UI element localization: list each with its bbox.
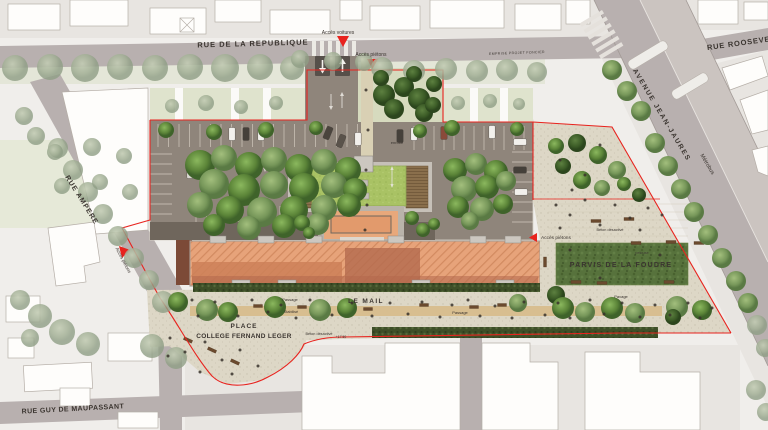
tree (258, 122, 274, 138)
label-acces-voitures: Accès voitures (322, 30, 355, 36)
label-acces-pietons-top: Accès piétons (355, 52, 387, 58)
label-level-mail: +17.50 (336, 335, 347, 339)
tree (21, 329, 39, 347)
person-dot (365, 89, 368, 92)
person-dot (197, 315, 200, 318)
tree (665, 309, 681, 325)
tree (49, 319, 75, 345)
tree (425, 97, 441, 113)
tree (311, 149, 337, 175)
tree (552, 297, 574, 319)
tree (493, 194, 513, 214)
person-dot (599, 277, 602, 280)
person-dot (603, 313, 606, 316)
person-dot (647, 207, 650, 210)
tree (451, 96, 465, 110)
person-dot (669, 314, 672, 317)
bench (420, 304, 429, 307)
hedge-north (193, 283, 540, 292)
person-dot (511, 317, 514, 320)
tree (337, 193, 361, 217)
bench (591, 220, 601, 223)
person-dot (371, 315, 374, 318)
bench (666, 241, 676, 244)
site-plan-canvas: RUE DE LA REPUBLIQUE RUE ROOSEVELT AVENU… (0, 0, 768, 430)
person-dot (639, 229, 642, 232)
label-pavage: Pavage (614, 294, 628, 299)
person-dot (295, 317, 298, 320)
tree (177, 54, 203, 80)
person-dot (659, 254, 662, 257)
tree (269, 96, 283, 110)
person-dot (367, 129, 370, 132)
person-dot (364, 229, 367, 232)
bench (597, 282, 607, 285)
tree (15, 107, 33, 125)
tree (142, 55, 168, 81)
tree (324, 52, 342, 70)
tree (746, 380, 766, 400)
tree (466, 60, 488, 82)
parked-car (489, 126, 495, 139)
person-dot (257, 365, 260, 368)
tree (218, 302, 238, 322)
label-le-mail: LE MAIL (348, 298, 384, 305)
bench (298, 306, 307, 309)
person-dot (544, 314, 547, 317)
tree (575, 302, 595, 322)
bench (664, 281, 674, 284)
tree (211, 145, 237, 171)
tree (405, 211, 419, 225)
person-dot (331, 314, 334, 317)
person-dot (599, 224, 602, 227)
tree (406, 66, 422, 82)
tree (122, 184, 138, 200)
tree (435, 58, 457, 80)
tree (272, 214, 296, 238)
parked-car (243, 128, 249, 141)
tree (428, 218, 440, 230)
wood-deck-east (406, 166, 428, 208)
person-dot (231, 373, 234, 376)
tree (573, 171, 591, 189)
pedestrian-path (361, 58, 373, 162)
tree (608, 161, 626, 179)
person-dot (366, 204, 369, 207)
parked-car (514, 167, 527, 173)
tree (658, 156, 678, 176)
tree (309, 121, 323, 135)
tree (158, 122, 174, 138)
parked-car (229, 128, 235, 141)
tree (527, 62, 547, 82)
person-dot (280, 304, 283, 307)
tree (513, 98, 525, 110)
tree (291, 50, 309, 68)
tree (187, 192, 213, 218)
person-dot (571, 189, 574, 192)
person-dot (661, 214, 664, 217)
tree (116, 148, 132, 164)
tree (416, 223, 430, 237)
label-passage-2: Passage (452, 310, 468, 315)
bench (498, 304, 507, 307)
label-enrobe: enrobé (391, 140, 404, 145)
person-dot (169, 337, 172, 340)
person-dot (584, 199, 587, 202)
tree (168, 292, 188, 312)
person-dot (407, 313, 410, 316)
tree (198, 95, 214, 111)
bench (470, 306, 479, 309)
person-dot (711, 307, 714, 310)
label-beton-mail: Béton désactivé (305, 332, 332, 336)
parked-car (514, 139, 527, 145)
label-stabilise: Stabilisé (284, 310, 298, 314)
label-beton-parvis: Béton désactivé (596, 228, 623, 232)
tree (321, 172, 347, 198)
person-dot (239, 349, 242, 352)
parked-car (515, 189, 528, 195)
person-dot (479, 315, 482, 318)
tree (303, 227, 315, 239)
tree (645, 133, 665, 153)
bench (631, 242, 641, 245)
person-dot (191, 299, 194, 302)
person-dot (237, 315, 240, 318)
tree (165, 99, 179, 113)
label-place-line1: PLACE (230, 323, 257, 330)
tree (461, 212, 479, 230)
tree (444, 120, 460, 136)
bench (364, 308, 373, 311)
bench (571, 281, 581, 284)
label-place-line2: COLLEGE FERNAND LEGER (196, 333, 292, 340)
person-dot (167, 355, 170, 358)
tree (568, 134, 586, 152)
person-dot (421, 301, 424, 304)
tree (108, 226, 128, 246)
label-passage-1: Passage (282, 297, 298, 302)
tree (2, 55, 28, 81)
tree (496, 59, 518, 81)
person-dot (451, 304, 454, 307)
person-dot (204, 341, 207, 344)
person-dot (199, 371, 202, 374)
tree (309, 299, 331, 321)
tree (140, 334, 164, 358)
tree (373, 70, 389, 86)
tree (71, 54, 99, 82)
tree (139, 270, 159, 290)
person-dot (687, 302, 690, 305)
person-dot (569, 214, 572, 217)
tree (234, 100, 248, 114)
bench (544, 257, 547, 267)
tree (625, 303, 645, 323)
person-dot (557, 302, 560, 305)
tree (747, 315, 767, 335)
tree (413, 124, 427, 138)
label-pelouse: pelouse (635, 251, 648, 255)
tree (510, 122, 524, 136)
tree (726, 271, 746, 291)
tree (165, 347, 187, 369)
person-dot (559, 159, 562, 162)
tree (107, 54, 133, 80)
tree (496, 171, 516, 191)
person-dot (365, 169, 368, 172)
tree (261, 147, 287, 173)
parked-car (355, 133, 361, 146)
person-dot (699, 317, 702, 320)
tree (384, 99, 404, 119)
tree (548, 138, 564, 154)
masterplan-svg: RUE DE LA REPUBLIQUE RUE ROOSEVELT AVENU… (0, 0, 768, 430)
tree (465, 153, 487, 175)
person-dot (214, 301, 217, 304)
tree (83, 138, 101, 156)
person-dot (555, 204, 558, 207)
person-dot (494, 305, 497, 308)
person-dot (654, 304, 657, 307)
person-dot (523, 301, 526, 304)
label-parvis-foudre: PARVIS DE LA FOUDRE (570, 262, 672, 269)
person-dot (639, 316, 642, 319)
person-dot (184, 351, 187, 354)
person-dot (467, 299, 470, 302)
tree (28, 304, 52, 328)
person-dot (389, 302, 392, 305)
person-dot (439, 316, 442, 319)
person-dot (599, 144, 602, 147)
tree (426, 76, 442, 92)
tree (237, 216, 261, 240)
tree (247, 54, 273, 80)
tree (206, 124, 222, 140)
person-dot (559, 227, 562, 230)
person-dot (267, 311, 270, 314)
tree (684, 202, 704, 222)
tree (10, 290, 30, 310)
tree (260, 171, 288, 199)
tree (602, 60, 622, 80)
tree (594, 180, 610, 196)
courtyard-canopy (331, 216, 391, 233)
tree (92, 174, 108, 190)
tree (617, 177, 631, 191)
tree (698, 225, 718, 245)
label-acces-pietons-right: Accès piétons (541, 235, 571, 241)
tree (589, 146, 607, 164)
person-dot (584, 174, 587, 177)
person-dot (309, 299, 312, 302)
tree (203, 214, 225, 236)
person-dot (569, 249, 572, 252)
person-dot (614, 204, 617, 207)
tree (475, 175, 499, 199)
tree (712, 248, 732, 268)
person-dot (621, 302, 624, 305)
tree (601, 297, 623, 319)
person-dot (221, 359, 224, 362)
tree (738, 293, 758, 313)
street-college-east (460, 336, 482, 430)
tree (631, 101, 651, 121)
tree (555, 158, 571, 174)
tree (617, 81, 637, 101)
tree (47, 144, 63, 160)
bench (254, 305, 263, 308)
tree (211, 54, 239, 82)
tree (692, 300, 712, 320)
tree (632, 188, 646, 202)
person-dot (569, 317, 572, 320)
person-dot (629, 217, 632, 220)
person-dot (251, 299, 254, 302)
tree (27, 127, 45, 145)
person-dot (589, 299, 592, 302)
tree (76, 332, 100, 356)
tree (483, 94, 497, 108)
tree (671, 179, 691, 199)
tree (37, 54, 63, 80)
